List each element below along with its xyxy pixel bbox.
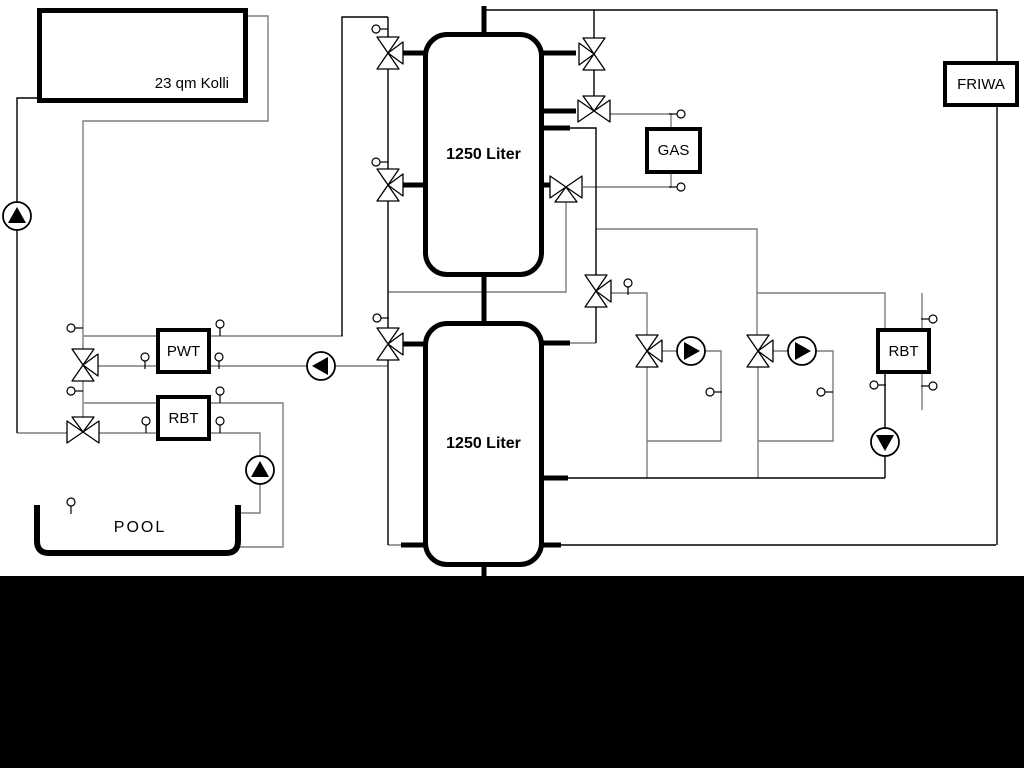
temperature-sensor-icon — [216, 387, 224, 403]
buffer-tank-top: 1250 Liter — [423, 32, 544, 277]
schematic-diagram: 23 qm Kolli 1250 Liter 1250 Liter GAS FR… — [0, 0, 1024, 768]
three-way-valve-icon — [585, 275, 611, 307]
footer-bar — [0, 576, 1024, 768]
buffer-tank-bottom-label: 1250 Liter — [446, 435, 521, 453]
pool-label: POOL — [100, 519, 180, 537]
temperature-sensor-icon — [216, 417, 224, 433]
rbt-left-box: RBT — [156, 395, 211, 441]
temperature-sensor-icon — [216, 320, 224, 336]
temperature-sensor-icon — [373, 314, 389, 322]
three-way-valve-icon — [636, 335, 662, 367]
rbt-right-box: RBT — [876, 328, 931, 374]
three-way-valve-icon — [578, 96, 610, 122]
temperature-sensor-icon — [142, 417, 150, 433]
three-way-valve-icon — [550, 176, 582, 202]
rbt-right-label: RBT — [889, 343, 919, 360]
temperature-sensor-icon — [817, 388, 833, 396]
pool-pump-icon — [246, 456, 274, 484]
buffer-tank-bottom: 1250 Liter — [423, 321, 544, 567]
friwa-box: FRIWA — [943, 61, 1019, 107]
temperature-sensor-icon — [372, 25, 388, 33]
temperature-sensor-icon — [67, 324, 83, 332]
temperature-sensor-icon — [706, 388, 722, 396]
rbt-left-label: RBT — [169, 410, 199, 427]
rbt-pump-icon — [871, 428, 899, 456]
buffer-tank-top-label: 1250 Liter — [446, 146, 521, 164]
temperature-sensor-icon — [921, 382, 937, 390]
pwt-charge-pump-icon — [307, 352, 335, 380]
three-way-valve-icon — [67, 417, 99, 443]
three-way-valve-icon — [72, 349, 98, 381]
three-way-valve-icon — [377, 37, 403, 69]
three-way-valve-icon — [747, 335, 773, 367]
three-way-valve-icon — [377, 328, 403, 360]
gas-boiler-box: GAS — [645, 127, 702, 174]
solar-collector-box: 23 qm Kolli — [37, 8, 248, 103]
solar-collector-label: 23 qm Kolli — [155, 75, 229, 92]
solar-pump-icon — [3, 202, 31, 230]
heating-pump-1-icon — [677, 337, 705, 365]
gas-boiler-label: GAS — [658, 142, 690, 159]
temperature-sensor-icon — [372, 158, 388, 166]
friwa-label: FRIWA — [957, 76, 1005, 93]
heating-pump-2-icon — [788, 337, 816, 365]
pwt-heat-exchanger-box: PWT — [156, 328, 211, 374]
temperature-sensor-icon — [921, 315, 937, 323]
three-way-valve-icon — [377, 169, 403, 201]
temperature-sensor-icon — [870, 381, 886, 389]
temperature-sensor-icon — [67, 387, 83, 395]
three-way-valve-icon — [579, 38, 605, 70]
pwt-label: PWT — [167, 343, 200, 360]
temperature-sensor-icon — [67, 498, 75, 514]
